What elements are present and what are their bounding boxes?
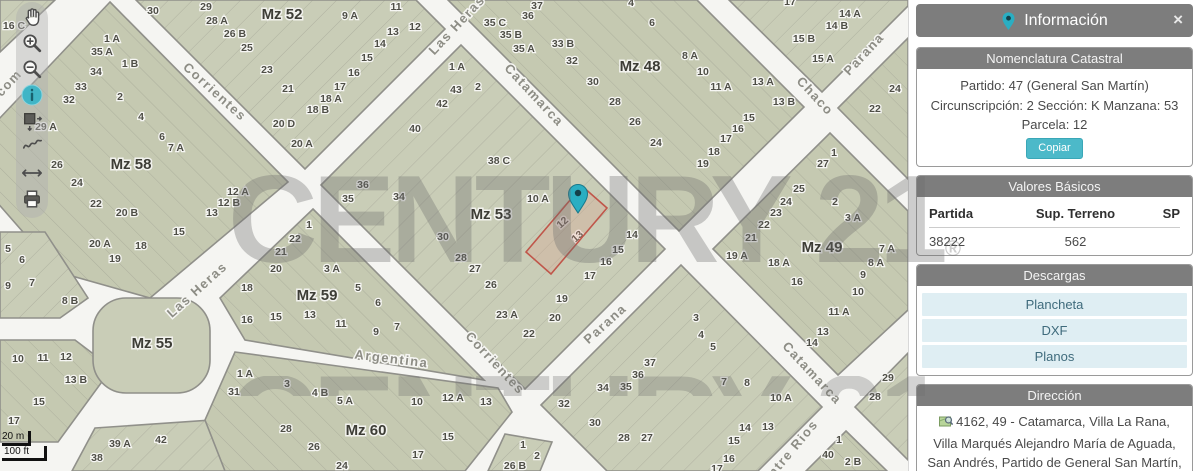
parcel-label: 17 [334,81,346,93]
parcel-label: 20 [270,263,282,275]
print-icon[interactable] [19,186,46,212]
parcel-label: 22 [869,103,881,115]
parcel-label: 16 [348,67,360,79]
extent-box-icon[interactable] [19,108,46,134]
parcel-label: 24 [780,196,792,208]
parcel-label: 21 [745,232,757,244]
parcel-label: 9 [373,326,379,338]
parcel-label: 8 A [868,257,884,269]
parcel-label: 13 [304,309,316,321]
parcel-label: 25 [241,42,253,54]
map-scalebar: 20 m 100 ft [2,431,47,461]
parcel-label: 15 [743,112,755,124]
parcel-label: 19 [556,293,568,305]
info-panel: Información × Nomenclatura Catastral Par… [908,0,1200,471]
parcel-label: 15 [728,435,740,447]
parcel-label: 15 [270,311,282,323]
parcel-label: 23 [770,207,782,219]
parcel-label: 28 [280,423,292,435]
parcel-label: 4 [628,0,634,9]
direccion-title: Dirección [917,385,1192,406]
map-canvas[interactable]: CorrientesCorrientesCatamarcaCatamarcaLa… [0,0,908,471]
parcel-label: 38 C [488,155,511,167]
parcel-label: 5 A [337,395,353,407]
parcel-label: 20 D [273,118,296,130]
parcel-label: 16 [732,123,744,135]
parcel-label: 15 [361,52,373,64]
parcel-label: 12 [409,21,421,33]
parcel-label: 28 [455,252,467,264]
parcel-label: 1 B [122,58,139,70]
parcel-label: 15 [442,431,454,443]
parcel-label: 17 [584,270,596,282]
scale-feet: 100 ft [2,446,47,461]
location-pin-icon [1001,11,1016,31]
parcel-label: 13 [762,421,774,433]
partido-line: Partido: 47 (General San Martín) [925,76,1184,96]
parcel-label: 13 [387,26,399,38]
parcel-label: 11 [37,352,48,364]
parcel-label: 18 [708,146,720,158]
parcel-label: 9 [860,269,866,281]
parcel-label: 11 A [828,306,850,318]
parcel-label: 35 C [484,17,507,29]
parcel-label: 18 [135,240,147,252]
parcel-label: 26 [308,441,320,453]
close-icon[interactable]: × [1173,10,1183,30]
address-text: 4162, 49 - Catamarca, Villa La Rana, Vil… [927,414,1181,471]
parcel-label: 29 [200,1,212,13]
parcel-label: 14 [739,422,751,434]
parcel-label: 17 [8,415,20,427]
parcel-label: 1 [306,219,312,231]
parcel-label: 27 [641,432,653,444]
parcel-label: 21 [275,246,287,258]
parcel-label: 27 [469,263,481,275]
parcel-label: 11 A [710,81,732,93]
block-label: Mz 55 [132,335,173,352]
scale-meters: 20 m [2,431,31,446]
block-label: Mz 48 [620,58,661,75]
parcel-label: 7 A [879,243,895,255]
parcel-label: 28 [869,391,881,403]
parcel-label: 10 [852,286,864,298]
valores-box: Valores Básicos Partida Sup. Terreno SP … [916,175,1193,256]
download-planos[interactable]: Planos [922,345,1187,368]
download-dxf[interactable]: DXF [922,319,1187,342]
parcel-label: 34 [393,191,405,203]
parcel-label: 30 [587,76,599,88]
parcel-label: 22 [758,219,770,231]
parcel-label: 13 B [65,374,88,386]
cell-sup-terreno: 562 [1015,228,1136,253]
parcel-label: 30 [589,417,601,429]
parcel-label: 25 [793,183,805,195]
parcel-label: 33 [75,81,87,93]
parcel-label: 39 A [109,438,131,450]
parcel-label: 34 [597,382,609,394]
parcel-label: 1 [520,439,526,451]
parcel-label: 17 [412,449,424,461]
parcel-label: 37 [644,357,656,369]
info-icon[interactable] [19,82,46,108]
parcel-label: 42 [155,434,167,446]
block-label: Mz 60 [346,422,387,439]
parcel-label: 5 [355,282,361,294]
parcel-label: 24 [889,83,901,95]
parcel-label: 1 [831,147,837,159]
parcel-label: 19 A [726,250,748,262]
parcel-label: 6 [375,297,381,309]
block-label: Mz 58 [111,156,152,173]
parcel-label: 32 [566,55,578,67]
parcel-label: 34 [90,66,102,78]
parcel-label: 40 [822,449,834,461]
parcel-label: 10 A [770,392,792,404]
parcel-label: 26 B [504,460,527,471]
parcel-label: 11 [335,318,346,330]
parcel-label: 24 [650,137,662,149]
parcel-label: 20 B [116,207,139,219]
download-plancheta[interactable]: Plancheta [922,293,1187,316]
parcel-label: 14 [626,229,638,241]
parcel-label: 14 [806,337,818,349]
parcel-label: 24 [71,177,83,189]
parcel-label: 2 [475,81,481,93]
parcel-label: 36 [522,10,534,22]
parcel-label: 18 B [307,104,330,116]
parcel-label: 28 A [206,15,228,27]
parcel-label: 2 B [845,456,862,468]
parcel-label: 13 B [773,96,796,108]
parcel-label: 26 B [224,28,247,40]
parcel-label: 7 [721,376,727,388]
parcel-label: 23 A [496,309,518,321]
parcel-label: 30 [437,231,449,243]
parcel-label: 6 [159,131,165,143]
parcel-label: 10 [12,353,24,365]
parcel-label: 2 [117,91,123,103]
parcel-label: 6 [19,254,25,266]
parcel-label: 8 B [62,295,79,307]
cell-partida: 38222 [929,228,1015,253]
parcel-label: 18 A [768,257,790,269]
parcel-label: 13 A [752,76,774,88]
parcel-label: 19 [697,158,709,170]
parcel-label: 30 [147,5,159,17]
parcel-label: 31 [228,386,240,398]
parcel-label: 35 A [513,43,535,55]
circunscripcion-line: Circunscripción: 2 Sección: K Manzana: 5… [925,96,1184,116]
descargas-box: Descargas Plancheta DXF Planos [916,264,1193,376]
parcel-label: 12 B [218,197,241,209]
parcel-label: 20 [549,312,561,324]
parcel-label: 21 [282,83,294,95]
parcel-label: 1 A [237,368,253,380]
parcel-label: 35 B [500,29,523,41]
parcel-label: 36 [632,369,644,381]
parcel-label: 16 [600,256,612,268]
parcel-label: 35 [342,193,354,205]
parcel-label: 12 A [442,392,464,404]
parcel-label: 23 [261,64,273,76]
parcel-label: 35 A [91,46,113,58]
parcel-label: 38 [91,452,103,464]
parcel-label: 18 A [320,93,342,105]
parcel-label: 22 [289,233,301,245]
pan-hand-icon[interactable] [19,4,46,30]
parcel-label: 16 [791,276,803,288]
parcel-label: 5 [710,341,716,353]
descargas-title: Descargas [917,265,1192,286]
parcel-label: 13 [817,326,829,338]
parcel-label: 10 [411,396,423,408]
parcel-label: 16 [723,453,735,465]
direccion-box: Dirección 4162, 49 - Catamarca, Villa La… [916,384,1193,471]
parcel-label: 9 A [342,10,358,22]
block-label: Mz 49 [802,239,843,256]
parcel-label: 15 [612,244,624,256]
parcel-label: 22 [523,328,535,340]
parcel-label: 15 A [812,53,834,65]
parcel-label: 27 [817,158,829,170]
parcel-label: 4 B [312,387,329,399]
parcel-label: 8 [744,377,750,389]
copy-button[interactable]: Copiar [1026,138,1082,160]
zoom-out-icon[interactable] [19,56,46,82]
parcel-label: 1 A [104,33,120,45]
parcel-label: 33 B [552,38,575,50]
parcel-label: 15 [173,226,185,238]
parcel-label: 19 [109,253,121,265]
parcel-label: 1 A [449,61,465,73]
parcel-label: 4 [138,111,144,123]
parcel-label: 9 [5,280,11,292]
parcel-label: 11 [390,1,401,13]
parcel-label: 29 [882,372,894,384]
parcel-label: 13 [480,396,492,408]
cell-sp [1136,228,1180,253]
parcel-label: 28 [618,432,630,444]
parcel-label: 15 [33,396,45,408]
parcel-label: 2 [832,196,838,208]
parcel-label: 26 [51,159,63,171]
parcel-label: 42 [436,98,448,110]
parcel-label: 32 [558,398,570,410]
parcel-label: 14 [374,38,386,50]
measure-width-icon[interactable] [19,160,46,186]
parcel-label: 36 [357,179,369,191]
address-map-icon [939,414,953,434]
valores-table: Partida Sup. Terreno SP 38222 562 [917,197,1192,255]
nomenclatura-title: Nomenclatura Catastral [917,48,1192,69]
parcel-label: 17 [784,0,796,8]
parcel-label: 3 A [324,263,340,275]
map-toolbar [16,2,48,218]
parcel-label: 13 [206,207,218,219]
panel-header: Información × [916,4,1193,37]
cadastral-map-app: CorrientesCorrientesCatamarcaCatamarcaLa… [0,0,1200,471]
parcel-label: 12 [60,351,72,363]
nomenclatura-box: Nomenclatura Catastral Partido: 47 (Gene… [916,47,1193,167]
parcel-label: 10 A [527,193,549,205]
parcel-label: 1 [836,434,842,446]
parcel-label: 20 A [89,238,111,250]
parcel-label: 14 A [839,8,861,20]
parcel-label: 20 A [291,138,313,150]
block-label: Mz 52 [262,6,303,23]
parcel-label: 6 [649,17,655,29]
parcel-label: 24 [336,460,348,471]
parcel-label: 7 A [168,142,184,154]
parcel-label: 15 B [793,33,816,45]
parcel-label: 4 [698,329,704,341]
zoom-in-icon[interactable] [19,30,46,56]
parcel-label: 17 [720,133,732,145]
parcel-label: 35 [620,381,632,393]
block-label: Mz 59 [297,287,338,304]
col-sp: SP [1136,203,1180,224]
parcel-label: 3 [284,378,290,390]
parcel-label: 17 [711,463,723,471]
col-sup-terreno: Sup. Terreno [1015,203,1136,224]
panel-title: Información [1024,12,1108,30]
parcel-label: 26 [485,279,497,291]
parcel-label: 12 A [227,186,249,198]
parcel-label: 26 [629,116,641,128]
col-partida: Partida [929,203,1015,224]
parcel-label: 3 [693,312,699,324]
parcel-label: 40 [409,123,421,135]
parcel-label: 28 [609,96,621,108]
map-pin-center [575,190,581,196]
parcel-label: 2 [534,450,540,462]
parcel-label: 10 [697,66,709,78]
parcel-label: 14 B [826,20,849,32]
parcel-label: 8 A [682,50,698,62]
parcel-label: 32 [63,94,75,106]
block-label: Mz 53 [471,206,512,223]
parcel-label: 16 [241,314,253,326]
parcel-label: 43 [450,84,462,96]
measure-line-icon[interactable] [19,134,46,160]
parcela-line: Parcela: 12 [925,115,1184,135]
map-area: CorrientesCorrientesCatamarcaCatamarcaLa… [0,0,908,471]
parcel-label: 3 A [845,212,861,224]
parcel-label: 5 [5,243,11,255]
valores-title: Valores Básicos [917,176,1192,197]
parcel-label: 7 [394,321,400,333]
parcel-label: 22 [90,198,102,210]
parcel-label: 18 [241,282,253,294]
parcel-label: 7 [29,277,35,289]
